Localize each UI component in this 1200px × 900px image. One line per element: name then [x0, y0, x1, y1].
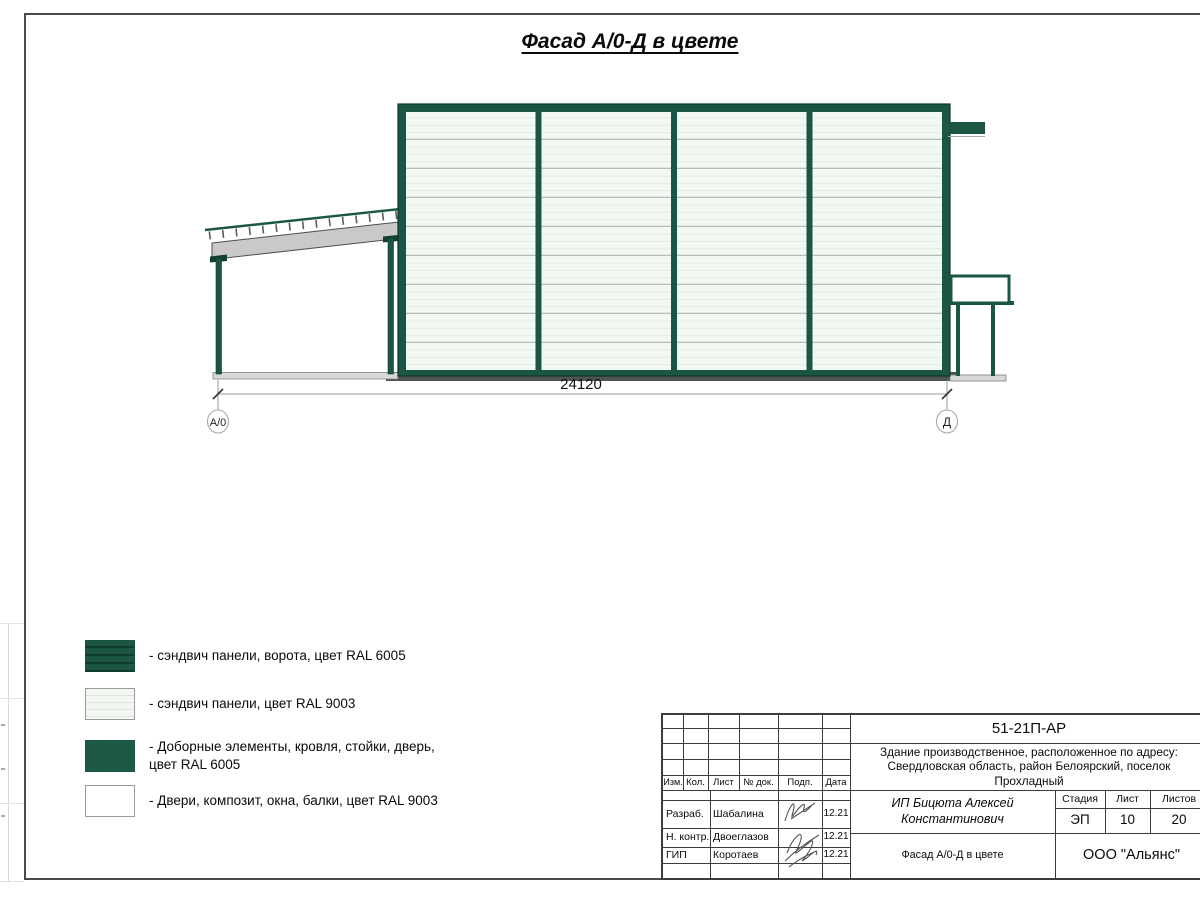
col-header-doc: № док.	[739, 775, 778, 790]
sheet-header: Лист	[1105, 790, 1150, 808]
canopy-column	[216, 258, 222, 374]
facade-drawing: 24120 А/0 Д	[0, 0, 1200, 460]
signer-name: Двоеглазов	[710, 828, 778, 847]
edge-text-speck	[1, 768, 5, 770]
signatures	[779, 795, 823, 877]
sheets-header: Листов	[1150, 790, 1200, 808]
fold-mark-line	[8, 623, 9, 882]
signer-role: ГИП	[663, 847, 710, 863]
signer-role: Разраб.	[663, 800, 710, 828]
legend-item: - Двери, композит, окна, балки, цвет RAL…	[85, 785, 438, 817]
signer-date: 12.21	[822, 800, 850, 828]
legend-item: - Доборные элементы, кровля, стойки, две…	[85, 738, 454, 773]
legend-item: - сэндвич панели, цвет RAL 9003	[85, 688, 355, 720]
gutter-outlet	[945, 122, 985, 134]
legend-label: - Доборные элементы, кровля, стойки, две…	[149, 738, 454, 773]
legend-item: - сэндвич панели, ворота, цвет RAL 6005	[85, 640, 406, 672]
legend-swatch-doors-windows	[85, 785, 135, 817]
axis-label-left: А/0	[210, 417, 227, 429]
title-block: 51-21П-АР Здание производственное, распо…	[661, 713, 1200, 880]
fold-mark-line	[0, 881, 24, 882]
drawing-title-cell: Фасад А/0-Д в цвете	[850, 833, 1055, 878]
entrance-porch	[946, 276, 1014, 376]
fold-mark-line	[0, 698, 24, 699]
col-header-list: Лист	[708, 775, 739, 790]
col-header-kol: Кол.	[683, 775, 708, 790]
axis-label-right: Д	[943, 415, 951, 429]
sheet-number: 10	[1105, 808, 1150, 833]
signer-date: 12.21	[822, 828, 850, 847]
panel-bay	[542, 112, 672, 370]
legend-swatch-sandwich-panels	[85, 688, 135, 720]
document-code: 51-21П-АР	[850, 715, 1200, 743]
col-header-podp: Подп.	[778, 775, 822, 790]
panel-bay	[406, 112, 536, 370]
legend-swatch-gate-sandwich-panels	[85, 640, 135, 672]
porch-canopy-box	[951, 276, 1009, 303]
dimension-value: 24120	[560, 376, 602, 393]
panel-bay	[677, 112, 807, 370]
signer-name: Коротаев	[710, 847, 778, 863]
canopy-column	[388, 238, 394, 374]
fold-mark-line	[0, 803, 24, 804]
signer-name: Шабалина	[710, 800, 778, 828]
drawing-sheet: Фасад А/0-Д в цвете	[0, 0, 1200, 900]
client-name: ИП Бицюта Алексей Константинович	[850, 790, 1055, 833]
legend-label: - сэндвич панели, ворота, цвет RAL 6005	[149, 647, 406, 665]
signer-date: 12.21	[822, 847, 850, 863]
fold-mark-line	[0, 623, 24, 624]
building-facade	[398, 104, 985, 376]
stage-header: Стадия	[1055, 790, 1105, 808]
porch-post	[956, 304, 960, 376]
legend-swatch-trim-elements	[85, 740, 135, 772]
edge-text-speck	[1, 815, 5, 817]
canopy-beam	[212, 222, 399, 260]
organization-name: ООО "Альянс"	[1055, 833, 1200, 878]
edge-text-speck	[1, 724, 5, 726]
signer-role: Н. контр.	[663, 828, 710, 847]
sheets-total: 20	[1150, 808, 1200, 833]
col-header-izm: Изм.	[663, 775, 683, 790]
project-description: Здание производственное, расположенное п…	[853, 743, 1200, 790]
signature-scribble	[785, 803, 815, 821]
canopy	[205, 209, 405, 375]
col-header-data: Дата	[822, 775, 850, 790]
panel-bay	[813, 112, 943, 370]
signature-scribble	[785, 835, 819, 867]
legend-label: - сэндвич панели, цвет RAL 9003	[149, 695, 355, 713]
dimension-line: 24120 А/0 Д	[208, 376, 958, 433]
legend-label: - Двери, композит, окна, балки, цвет RAL…	[149, 792, 438, 810]
stage-value: ЭП	[1055, 808, 1105, 833]
porch-post	[991, 304, 995, 376]
